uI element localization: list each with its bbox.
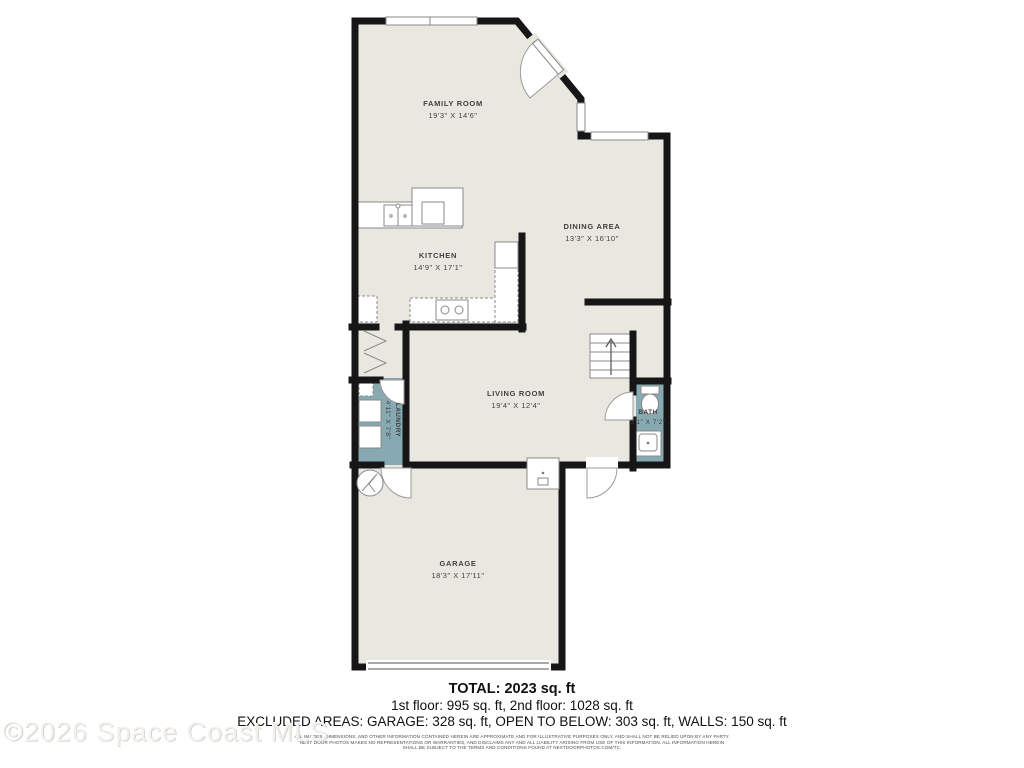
kitchen-counter-side-top [495, 242, 518, 268]
kitchen-appliance [422, 202, 444, 224]
watermark: ©2026 Space Coast MLS [3, 717, 329, 748]
kitchen-cabinet [357, 296, 377, 322]
front-door-swing [586, 457, 618, 498]
room-label-family-room: FAMILY ROOM 19'3" X 14'6" [423, 98, 483, 122]
total-area-text: TOTAL: 2023 sq. ft [0, 681, 1024, 698]
floor-areas-text: 1st floor: 995 sq. ft, 2nd floor: 1028 s… [0, 698, 1024, 714]
garage-door [366, 660, 551, 673]
floor-plan-drawing [0, 0, 1024, 768]
utility-box [527, 458, 559, 489]
room-label-kitchen: KITCHEN 14'9" X 17'1" [414, 250, 463, 274]
cooktop-icon [436, 300, 468, 320]
room-label-garage: GARAGE 18'3" X 17'11" [432, 558, 485, 582]
room-label-living-room: LIVING ROOM 19'4" X 12'4" [487, 388, 545, 412]
water-heater-icon [357, 470, 383, 496]
room-label-dining-area: DINING AREA 13'3" X 16'10" [563, 221, 620, 245]
washer-icon [359, 400, 381, 422]
dryer-icon [359, 426, 381, 448]
room-label-bath: BATH 3'1" X 7'2" [630, 408, 665, 428]
room-label-laundry: LAUNDRY 4'11" X 7'8" [382, 401, 402, 440]
stairs-icon [590, 334, 632, 378]
kitchen-sink-icon [384, 204, 412, 226]
bath-sink-icon [635, 431, 661, 456]
floor-plan-page: FAMILY ROOM 19'3" X 14'6" DINING AREA 13… [0, 0, 1024, 768]
